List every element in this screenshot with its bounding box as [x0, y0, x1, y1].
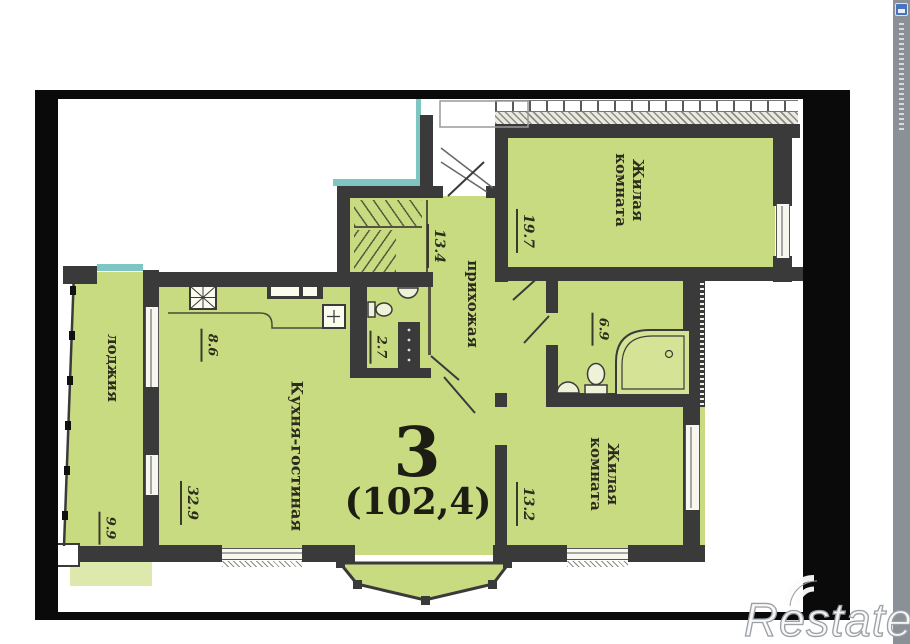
door-living-bottom — [444, 377, 475, 413]
label-kitchen-living: Кухня-гостиная — [288, 381, 307, 531]
area-bathroom: 6.9 — [592, 313, 611, 346]
area-hallway: 13.4 — [427, 224, 447, 268]
door-bathroom — [524, 316, 549, 343]
frame-bottom — [35, 612, 850, 620]
bath-toilet-tank — [585, 385, 607, 394]
area-kitchen-living: 32.9 — [180, 481, 200, 525]
strip-caption-text — [899, 22, 904, 130]
area-living-room-top: 19.7 — [516, 209, 536, 253]
loggia-glazing-edge — [64, 272, 74, 546]
bay-post — [488, 580, 497, 589]
counter-box — [271, 287, 299, 296]
label-loggia: лоджия — [104, 334, 122, 402]
glazing-post — [70, 286, 76, 295]
frame-top — [35, 90, 850, 99]
watermark-arcs-icon — [781, 572, 825, 606]
area-loggia: 9.9 — [99, 512, 118, 545]
stair-landing-outline — [440, 101, 528, 127]
area-wc: 2.7 — [370, 331, 389, 364]
bay-post — [353, 580, 362, 589]
glazing-post — [65, 421, 71, 430]
frame-right — [803, 90, 850, 617]
kitchen-zone-line — [168, 313, 323, 328]
thumbnail-icon — [895, 3, 908, 16]
apartment-number: 3 — [393, 419, 440, 487]
frame-left — [35, 90, 58, 620]
wc-sink — [398, 288, 418, 298]
vent-dot — [408, 339, 411, 342]
counter-box — [303, 287, 317, 296]
side-watermark-strip — [893, 0, 910, 644]
area-living-room-bottom: 13.2 — [516, 482, 536, 526]
stove-hatch — [190, 286, 216, 309]
glazing-post — [64, 466, 70, 475]
floorplan-screenshot: Жилая комната 19.7 прихожая 13.4 Жилая к… — [0, 0, 910, 644]
watermark-text: Restate — [744, 592, 910, 644]
area-kitchen-zone: 8.6 — [201, 329, 220, 362]
door-living-top — [513, 273, 543, 300]
bay-window — [340, 563, 509, 600]
label-living-room-bottom: Жилая комната — [587, 435, 621, 513]
wc-toilet-bowl — [376, 303, 392, 316]
plan-detail-overlay — [35, 90, 850, 620]
vent-dot — [408, 349, 411, 352]
vent-dot — [408, 359, 411, 362]
wc-toilet-tank — [368, 302, 375, 317]
glazing-post — [67, 376, 73, 385]
label-hallway: прихожая — [464, 260, 482, 348]
bath-sink — [557, 382, 579, 393]
stair-line — [441, 148, 493, 188]
bay-post — [336, 559, 345, 568]
bath-toilet-bowl — [588, 364, 605, 385]
bathtub — [616, 330, 690, 395]
glazing-post — [62, 511, 68, 520]
door-wc — [431, 356, 459, 380]
apartment-total-area: (102,4) — [345, 484, 492, 520]
vent-dot — [408, 329, 411, 332]
glazing-post — [69, 331, 75, 340]
bay-post — [421, 596, 430, 605]
label-living-room-top: Жилая комната — [612, 151, 646, 229]
bay-post — [503, 559, 512, 568]
